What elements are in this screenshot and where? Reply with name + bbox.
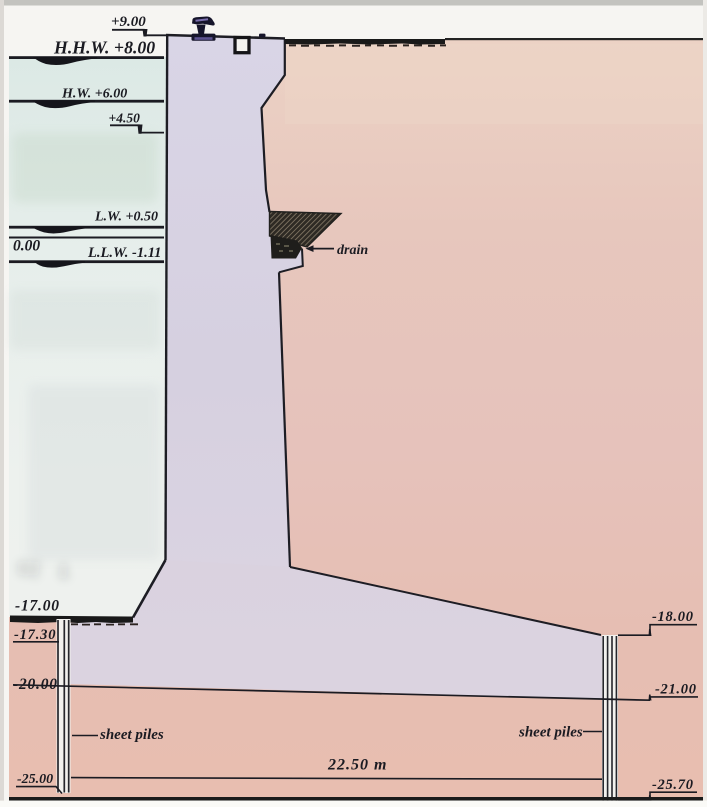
svg-text:H.H.W. +8.00: H.H.W. +8.00	[53, 38, 155, 58]
svg-text:l.: l.	[60, 561, 71, 583]
svg-text:U(: U(	[18, 558, 40, 580]
svg-text:22.50 m: 22.50 m	[327, 757, 387, 774]
svg-text:H.W. +6.00: H.W. +6.00	[61, 87, 127, 102]
svg-text:-17.30: -17.30	[14, 627, 56, 643]
svg-text:-17.00: -17.00	[15, 598, 60, 615]
svg-text:L.L.W. -1.11: L.L.W. -1.11	[87, 245, 161, 261]
svg-text:sheet piles: sheet piles	[99, 727, 164, 743]
svg-text:-25.70: -25.70	[652, 777, 694, 793]
svg-text:-21.00: -21.00	[655, 682, 697, 698]
svg-text:+9.00: +9.00	[111, 14, 146, 30]
svg-text:L.W. +0.50: L.W. +0.50	[94, 210, 158, 225]
svg-text:0.00: 0.00	[13, 238, 40, 255]
svg-text:-20.00: -20.00	[13, 676, 58, 693]
svg-text:-25.00: -25.00	[17, 772, 53, 787]
svg-text:sheet piles: sheet piles	[518, 725, 583, 741]
svg-text:+4.50: +4.50	[109, 111, 141, 126]
svg-text:drain: drain	[337, 243, 368, 258]
svg-text:-18.00: -18.00	[652, 609, 694, 625]
